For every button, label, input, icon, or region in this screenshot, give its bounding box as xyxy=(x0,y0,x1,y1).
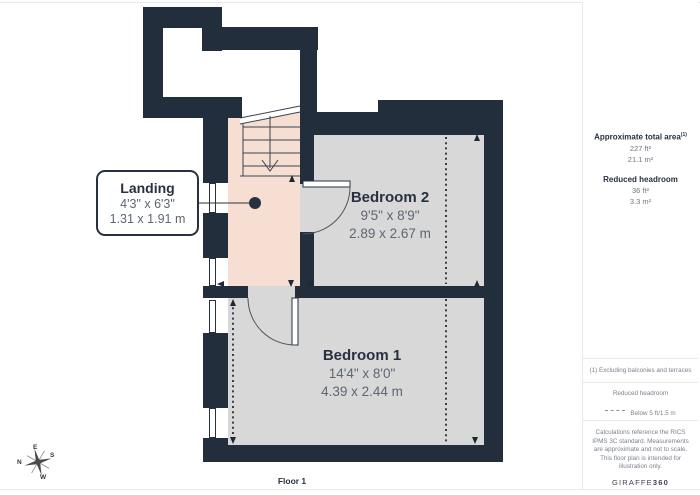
landing-label: Landing 4'3" x 6'3" 1.31 x 1.91 m xyxy=(96,170,199,236)
room-name: Bedroom 1 xyxy=(287,346,437,365)
compass-north: N xyxy=(17,459,22,466)
floorplan-page: Landing 4'3" x 6'3" 1.31 x 1.91 m Bedroo… xyxy=(0,0,700,495)
room-dim-metric: 1.31 x 1.91 m xyxy=(110,212,186,227)
door-leaf xyxy=(303,181,350,187)
room-name: Landing xyxy=(120,180,174,197)
area-summary: Approximate total area(1) 227 ft² 21.1 m… xyxy=(583,130,698,207)
total-area-m: 21.1 m² xyxy=(583,154,698,165)
floor-title: Floor 1 xyxy=(242,476,342,486)
footnote-text: (1) Excluding balconies and terraces xyxy=(583,359,698,376)
bedroom2-door-opening xyxy=(300,184,314,232)
logo-text: GIRAFFE xyxy=(612,478,653,487)
reduced-headroom-ft: 36 ft² xyxy=(583,185,698,196)
footnote-box: (1) Excluding balconies and terraces xyxy=(583,358,698,382)
total-area-ft: 227 ft² xyxy=(583,143,698,154)
dashed-line-icon xyxy=(605,410,625,411)
bedroom1-label: Bedroom 1 14'4" x 8'0" 4.39 x 2.44 m xyxy=(287,346,437,401)
disclaimer-box: Calculations reference the RICS IPMS 3C … xyxy=(583,420,698,489)
room-dim-metric: 4.39 x 2.44 m xyxy=(287,383,437,401)
total-area-title: Approximate total area(1) xyxy=(583,130,698,143)
door-leaf xyxy=(292,298,298,345)
window xyxy=(210,409,216,438)
reduced-headroom-title: Reduced headroom xyxy=(583,174,698,185)
room-dim-imperial: 9'5" x 8'9" xyxy=(315,207,465,225)
window xyxy=(210,259,216,286)
landing-floor xyxy=(228,112,300,286)
room-dim-imperial: 4'3" x 6'3" xyxy=(120,197,175,212)
total-area-footnote-ref: (1) xyxy=(681,132,687,138)
room-name: Bedroom 2 xyxy=(315,188,465,207)
compass-east: E xyxy=(33,444,37,451)
room-dim-imperial: 14'4" x 8'0" xyxy=(287,365,437,383)
disclaimer-text: Calculations reference the RICS IPMS 3C … xyxy=(583,421,698,472)
legend-value: Below 5 ft/1.5 m xyxy=(630,403,675,419)
bedroom2-label: Bedroom 2 9'5" x 8'9" 2.89 x 2.67 m xyxy=(315,188,465,243)
giraffe360-logo: GIRAFFE360 xyxy=(583,478,698,487)
compass-west: W xyxy=(40,474,46,481)
info-sidebar: Approximate total area(1) 227 ft² 21.1 m… xyxy=(582,2,698,489)
bedroom1-door-opening xyxy=(248,286,295,298)
reduced-headroom-m: 3.3 m² xyxy=(583,196,698,207)
window xyxy=(210,184,216,213)
landing-dot xyxy=(249,197,261,209)
legend-title: Reduced headroom xyxy=(583,383,698,399)
room-dim-metric: 2.89 x 2.67 m xyxy=(315,225,465,243)
window xyxy=(210,301,216,333)
floorplan-drawing xyxy=(0,0,580,495)
total-area-label: Approximate total area xyxy=(594,133,681,142)
logo-suffix: 360 xyxy=(653,478,669,487)
compass-south: S xyxy=(50,452,54,459)
legend-box: Reduced headroom Below 5 ft/1.5 m xyxy=(583,382,698,420)
compass-rose: E S N W xyxy=(12,436,64,488)
legend-row: Below 5 ft/1.5 m xyxy=(583,403,698,419)
